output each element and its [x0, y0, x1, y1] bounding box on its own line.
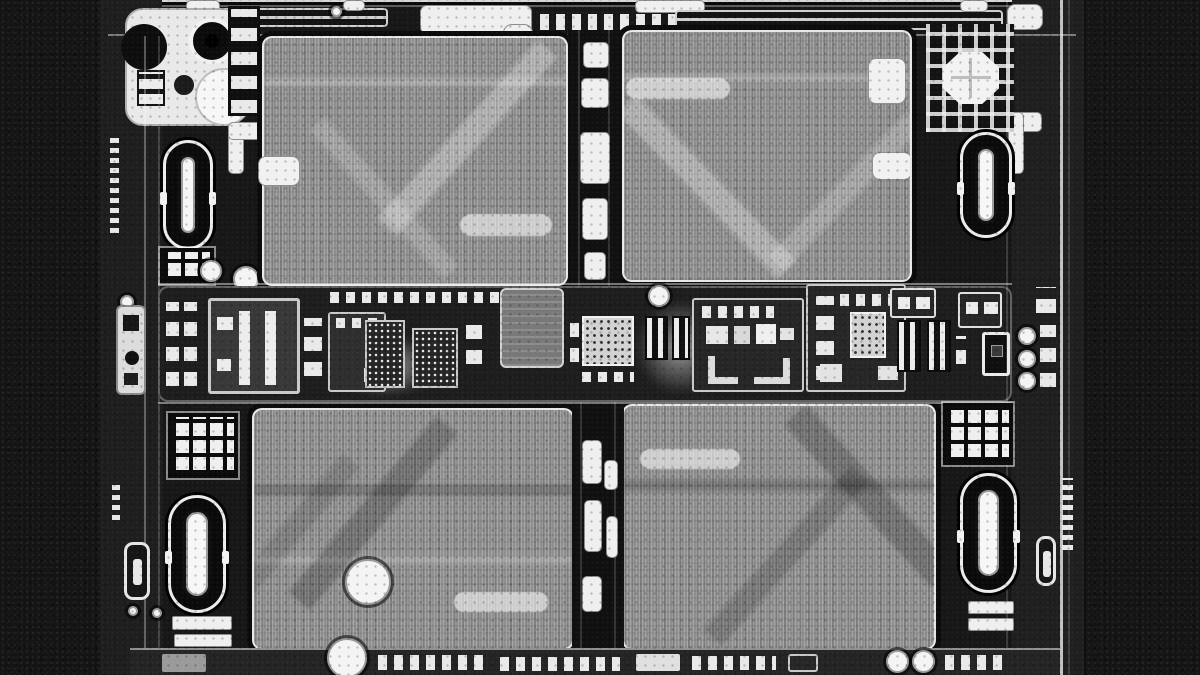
flex-channel-top — [568, 30, 622, 286]
camera-sensor-grid — [137, 70, 165, 106]
component-cluster-left — [692, 298, 804, 392]
board-connector-stack — [166, 302, 179, 386]
flex-channel-bottom — [572, 400, 624, 658]
battery-terminal-tab — [868, 58, 906, 104]
shield-slot — [265, 311, 276, 385]
ic-chip-small — [890, 288, 936, 318]
battery-cell-top-left — [262, 36, 568, 286]
left-connector-pad-2 — [124, 373, 138, 385]
bottom-component-row — [692, 656, 776, 670]
battery-shadow-band — [784, 404, 936, 588]
right-edge-line-2 — [1068, 0, 1070, 675]
flex-component — [584, 252, 606, 280]
chip-pad — [984, 302, 998, 314]
battery-adhesive-band — [310, 117, 459, 279]
round-fastener-bottom-center — [327, 638, 367, 675]
left-rail-dot-2 — [152, 608, 162, 618]
speaker-bottom-right — [960, 473, 1017, 593]
top-edge-tab — [343, 0, 365, 11]
speaker-top-right — [960, 132, 1012, 238]
flex-trace — [580, 400, 582, 658]
chip-pad — [780, 328, 794, 340]
bottom-component-row — [378, 655, 488, 670]
battery-adhesive-line — [254, 556, 572, 564]
shield-can-left — [208, 298, 300, 394]
chip-pad — [706, 326, 728, 344]
speaker-port-bar — [172, 616, 232, 630]
top-edge-screw — [331, 6, 342, 17]
battery-pull-tab — [460, 214, 552, 236]
board-pad-row — [330, 292, 520, 303]
speaker-tab — [957, 182, 964, 195]
flex-component — [582, 576, 602, 612]
bottom-screw — [912, 650, 935, 673]
speaker-tab — [160, 192, 167, 205]
speaker-port-bar — [968, 618, 1014, 631]
camera-flash-ring — [171, 72, 197, 98]
speaker-bottom-left-diaphragm — [183, 509, 211, 599]
speaker-tab — [1013, 530, 1020, 543]
speaker-top-left-diaphragm — [178, 154, 198, 236]
flex-component — [582, 440, 602, 484]
left-capsule-pin — [133, 559, 142, 585]
chip-pads — [702, 306, 774, 318]
round-fastener-bottom-left — [345, 559, 391, 605]
board-screw — [648, 285, 670, 307]
chip-pads — [582, 372, 634, 382]
chip-pad — [916, 297, 930, 309]
board-connector-stack — [956, 336, 966, 364]
corner-connector-horizontal — [228, 122, 262, 140]
top-edge-tab-right — [960, 0, 988, 12]
rear-camera-module — [125, 8, 241, 126]
speaker-tab — [222, 551, 229, 564]
battery-shadow-line — [624, 480, 934, 491]
bottom-screw — [886, 650, 909, 673]
battery-pull-tab — [454, 592, 548, 612]
left-zipper-contacts — [110, 138, 119, 233]
right-capsule-connector — [1036, 536, 1056, 586]
flex-component — [582, 198, 608, 240]
board-connector — [897, 320, 921, 372]
right-capsule-pin — [1043, 551, 1051, 577]
left-connector-dot — [125, 351, 139, 365]
board-connector — [672, 316, 690, 360]
left-button-connector — [116, 305, 146, 395]
board-connector — [645, 316, 668, 360]
shield-slot — [239, 311, 250, 385]
speaker-tab — [1008, 182, 1015, 195]
board-connector-stack — [304, 318, 322, 376]
board-trace — [754, 358, 790, 384]
left-capsule-connector — [124, 542, 150, 600]
flex-component — [581, 78, 609, 108]
board-bottom-edge — [158, 402, 1012, 404]
tablet-chassis — [100, 0, 1084, 675]
battery-pull-tab — [640, 449, 740, 469]
board-trace — [708, 356, 738, 384]
xray-photograph — [0, 0, 1200, 675]
bottom-board-block — [162, 654, 206, 672]
speaker-top-left — [163, 140, 213, 250]
camera-lens-core — [205, 34, 219, 48]
chip-pad — [734, 326, 750, 344]
battery-cell-bottom-right — [622, 404, 936, 650]
processor-bga — [582, 316, 634, 366]
battery-shadow-band — [703, 466, 868, 646]
board-connector — [927, 320, 951, 372]
speaker-tab — [165, 551, 172, 564]
right-edge-bright-line — [1060, 0, 1063, 675]
smart-connector-pin — [1018, 327, 1036, 345]
round-pad-top-left — [200, 260, 222, 282]
flex-component — [604, 460, 618, 490]
left-zipper-contacts-2 — [112, 480, 120, 520]
ic-chip-small — [958, 292, 1002, 328]
board-connector-stack — [570, 320, 579, 362]
smart-connector-pin — [1018, 350, 1036, 368]
flex-component — [580, 132, 610, 184]
octagon-cross-v — [969, 58, 972, 98]
chip-pad — [878, 366, 898, 380]
shield-pad — [217, 359, 231, 371]
chip-pad — [898, 297, 910, 309]
mesh-plate-bottom-right — [943, 403, 1013, 465]
smart-connector-pads-top — [1036, 287, 1056, 313]
chip-pad — [756, 324, 776, 344]
flex-component — [584, 500, 602, 552]
smart-connector-pads-right — [1040, 325, 1056, 387]
smart-connector-pin — [1018, 372, 1036, 390]
ladder-contact-strip — [228, 6, 260, 116]
chip-pad — [820, 364, 842, 382]
battery-terminal-tab — [872, 152, 912, 180]
battery-pull-tab — [626, 78, 730, 99]
shielded-module — [500, 288, 564, 368]
bga-chip-bright — [850, 312, 886, 358]
black-border-left — [0, 0, 110, 675]
right-zipper-contacts — [1062, 478, 1073, 550]
black-border-right — [1086, 0, 1200, 675]
speaker-tab — [957, 530, 964, 543]
flex-component — [606, 516, 618, 558]
bottom-component-row — [500, 657, 620, 671]
lattice-octagon-pad — [943, 52, 999, 104]
bga-chip — [412, 328, 458, 388]
antenna-lattice-top-right — [926, 24, 1014, 132]
speaker-port-bar — [968, 601, 1014, 614]
board-connector-stack — [184, 302, 197, 386]
bottom-ic-chip — [788, 654, 818, 672]
flex-component — [583, 42, 609, 68]
battery-cell-top-right — [622, 30, 912, 282]
speaker-top-right-diaphragm — [975, 146, 997, 224]
chip-pad — [966, 302, 978, 314]
battery-terminal-tab — [258, 156, 300, 186]
bottom-component-row — [945, 655, 1005, 670]
top-component-row — [540, 14, 690, 30]
socket-pad — [991, 345, 1003, 357]
mesh-plate-bottom-left — [168, 413, 238, 478]
speaker-bottom-right-diaphragm — [975, 487, 1002, 579]
speaker-bottom-left — [168, 495, 226, 613]
left-rail-dot — [128, 606, 138, 616]
battery-adhesive-band — [622, 95, 796, 279]
speaker-tab — [209, 192, 216, 205]
board-connector-stack — [466, 320, 482, 364]
battery-adhesive-band — [768, 112, 912, 271]
bga-chip — [365, 320, 405, 388]
battery-cell-bottom-left — [252, 408, 574, 650]
left-connector-pad — [123, 315, 139, 331]
bottom-bright-component — [636, 654, 680, 671]
shield-pad — [217, 317, 233, 330]
speaker-port-bar — [174, 634, 232, 647]
